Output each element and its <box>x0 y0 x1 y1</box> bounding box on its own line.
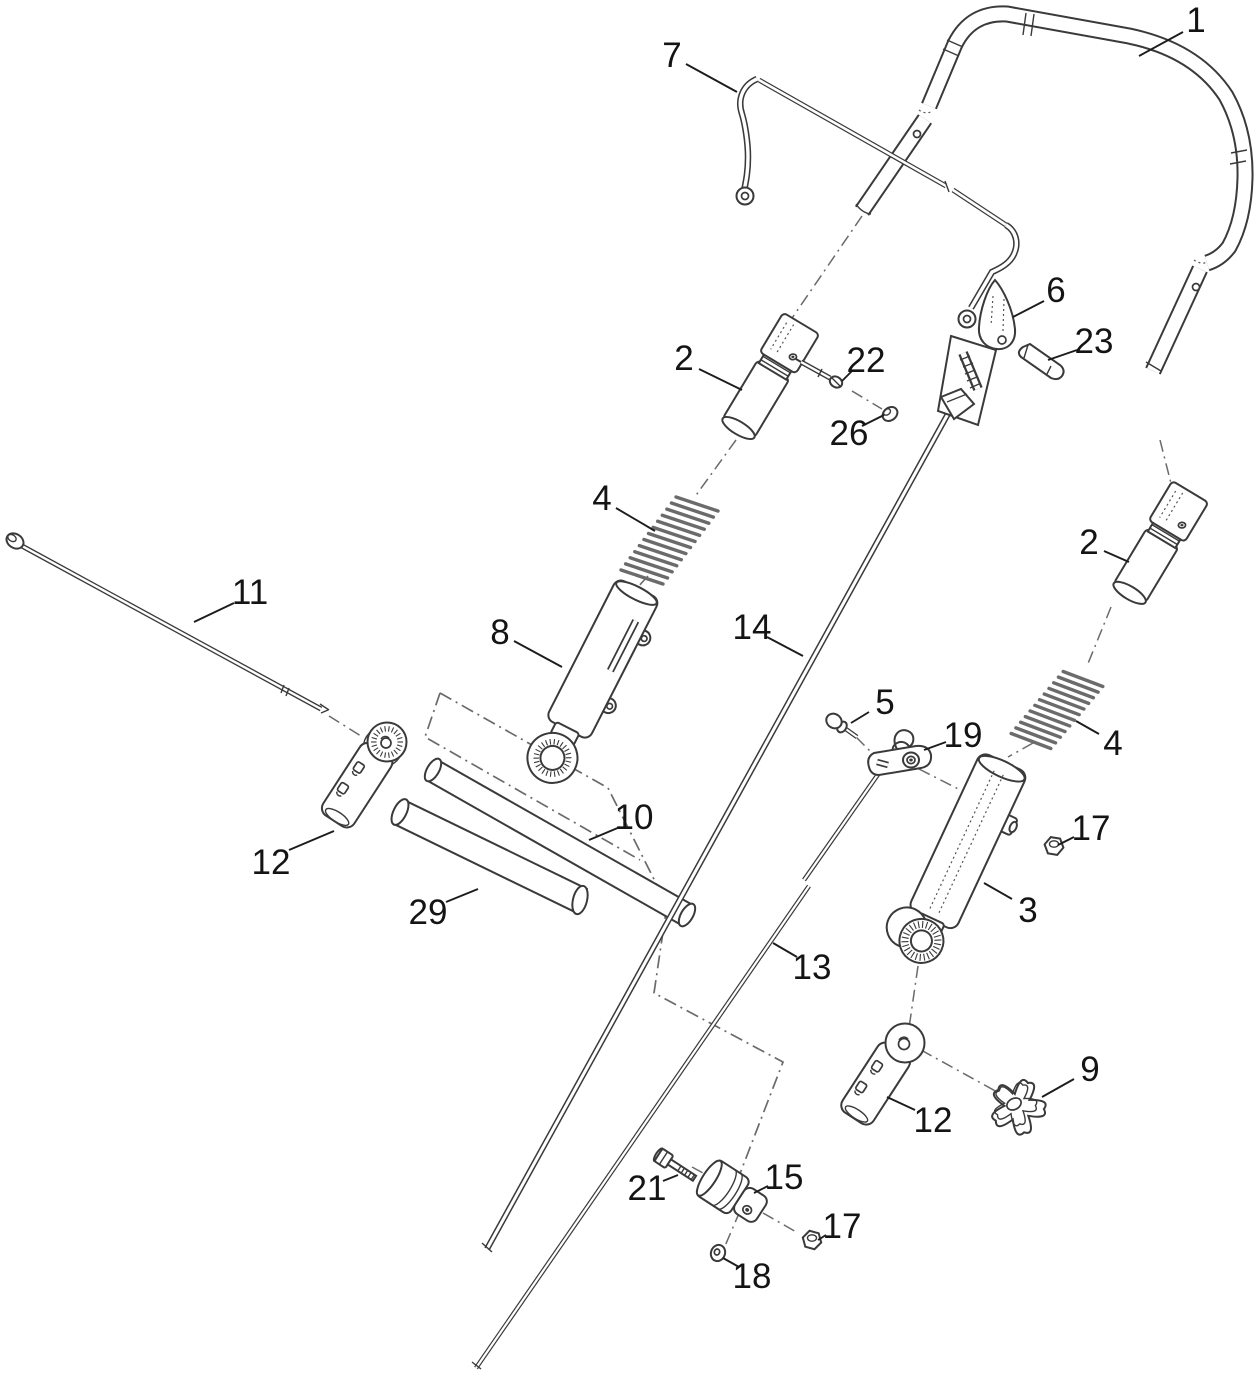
diagram-canvas: 1762322226421114851941017123291391215211… <box>0 0 1258 1376</box>
exploded-parts-diagram: 1762322226421114851941017123291391215211… <box>0 0 1258 1376</box>
callout-label-latch-plate: 19 <box>944 716 983 755</box>
callout-label-flange-nut-bottom: 17 <box>823 1207 862 1246</box>
callout-label-spring-right: 4 <box>1103 724 1122 763</box>
callout-label-shoulder-screw: 5 <box>875 683 894 722</box>
serration-tooth <box>385 726 386 731</box>
callout-label-detent-pin: 22 <box>847 341 886 380</box>
callout-label-cross-tube: 10 <box>615 798 654 837</box>
callout-label-trunnion-sleeve-left: 2 <box>674 339 693 378</box>
callout-label-spacer-tube: 29 <box>409 893 448 932</box>
handle-hole-left <box>914 131 921 138</box>
callout-label-clamp-bracket-right: 12 <box>914 1101 953 1140</box>
callout-label-clamp-bracket-left: 12 <box>252 843 291 882</box>
callout-label-lever-arm-left: 8 <box>490 613 509 652</box>
serration-tooth <box>388 752 389 757</box>
serration-tooth <box>388 726 389 731</box>
callout-label-trunnion-sleeve-right: 2 <box>1079 523 1098 562</box>
callout-label-cable-rod-upper: 14 <box>733 608 772 647</box>
callout-label-clevis-pin: 23 <box>1075 322 1114 361</box>
callout-label-cable-rod-lower: 13 <box>793 948 832 987</box>
callout-label-hex-bolt: 21 <box>628 1169 667 1208</box>
callout-label-bail-rod: 7 <box>662 36 681 75</box>
callout-label-lever-arm-right: 3 <box>1018 891 1037 930</box>
handle-hole-right <box>1193 284 1200 291</box>
part-flange-nut-right <box>1045 837 1064 855</box>
callout-label-upper-handle: 1 <box>1186 1 1205 40</box>
callout-label-spring-left: 4 <box>592 479 611 518</box>
callout-label-handle-rod: 11 <box>232 573 268 612</box>
callout-label-cam-lever: 6 <box>1046 271 1065 310</box>
callout-label-push-cap: 26 <box>830 414 869 453</box>
callout-label-star-knob: 9 <box>1080 1050 1099 1089</box>
serration-tooth <box>385 752 386 757</box>
callout-label-flange-nut-right: 17 <box>1072 809 1111 848</box>
callout-label-washer: 18 <box>733 1257 772 1296</box>
callout-label-trunnion-barrel: 15 <box>765 1158 804 1197</box>
